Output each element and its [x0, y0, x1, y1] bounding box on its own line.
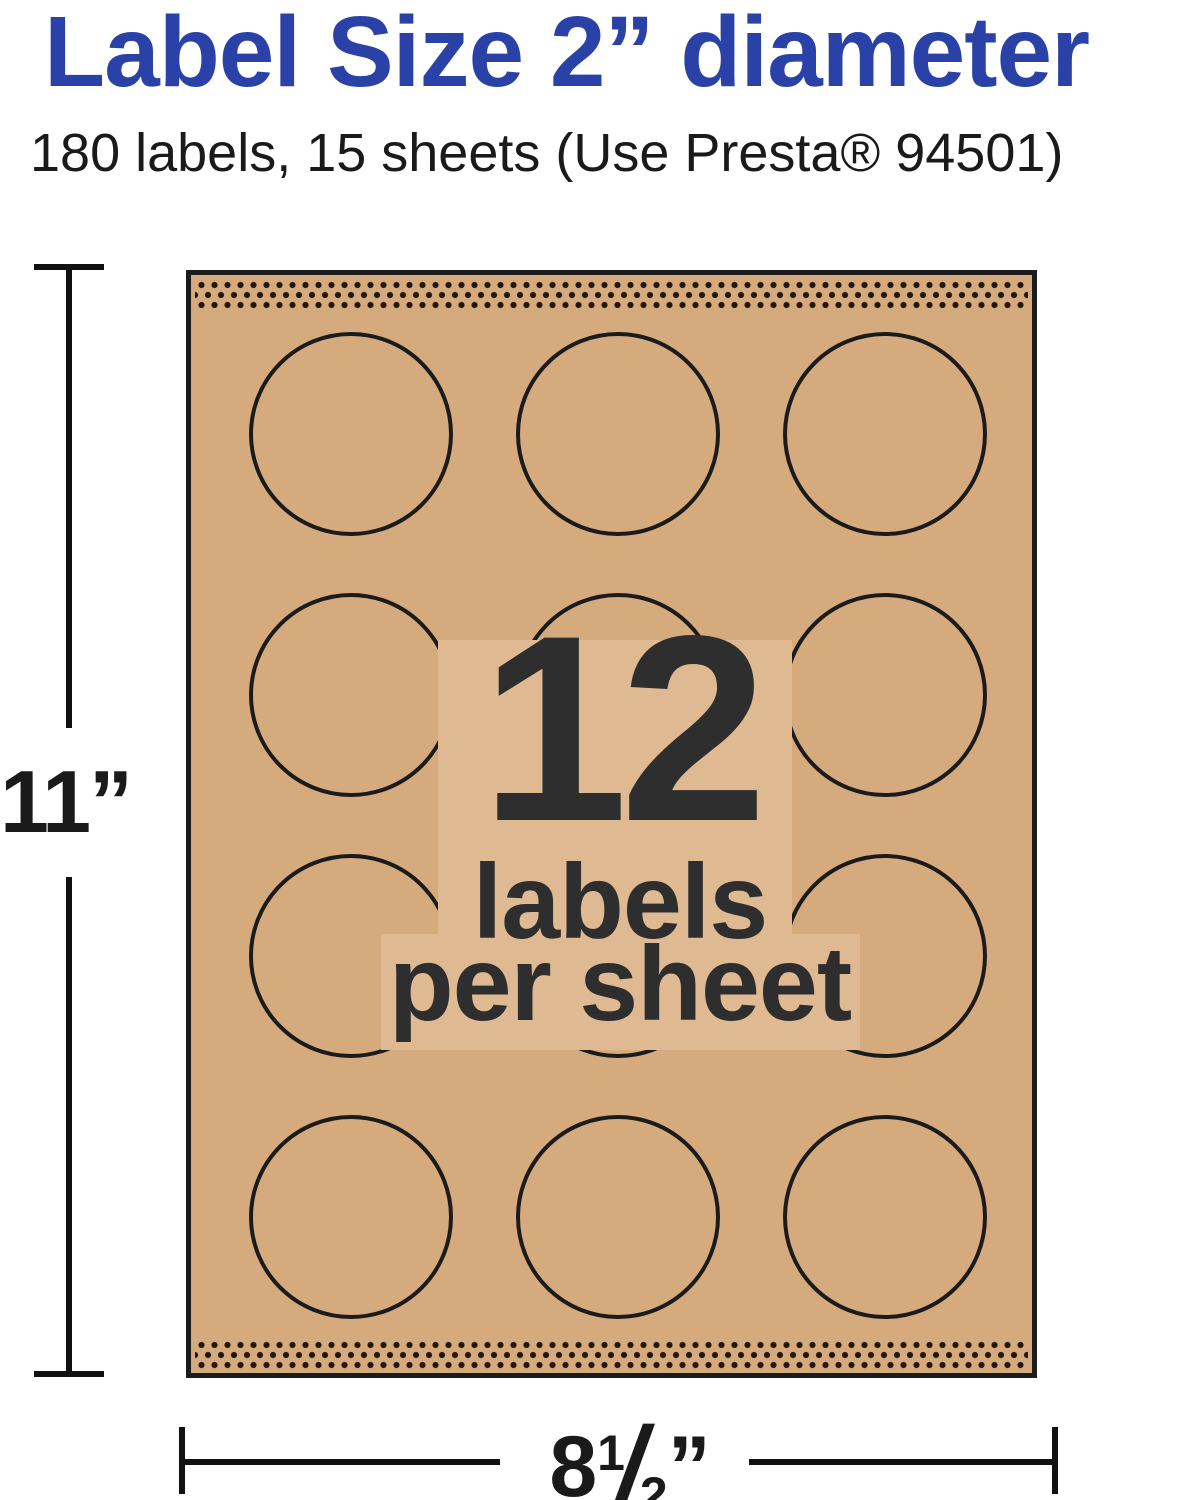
label-circle	[251, 334, 451, 534]
label-circle	[518, 334, 718, 534]
page-title: Label Size 2” diameter	[44, 2, 1089, 102]
labels-caption-line2: per sheet	[389, 938, 851, 1030]
height-dimension-label: 11”	[0, 762, 124, 842]
width-fraction-denominator: 2	[640, 1467, 668, 1500]
label-circle	[785, 1117, 985, 1317]
height-dimension-segment-lower	[66, 877, 72, 1373]
label-circle	[251, 1117, 451, 1317]
label-circle	[251, 595, 451, 795]
width-unit-mark: ”	[668, 1419, 711, 1500]
product-diagram: Label Size 2” diameter 180 labels, 15 sh…	[0, 0, 1186, 1500]
label-circle	[785, 334, 985, 534]
label-circle	[785, 595, 985, 795]
width-dimension-segment-left	[185, 1459, 500, 1465]
label-circle	[518, 1117, 718, 1317]
label-sheet: 12 labels per sheet	[186, 270, 1037, 1378]
height-dimension-cap-bottom	[34, 1371, 104, 1377]
height-dimension-segment-upper	[66, 264, 72, 728]
width-dimension-tick-right	[1052, 1427, 1058, 1494]
width-dimension-label: 81/2”	[505, 1415, 755, 1500]
page-subtitle: 180 labels, 15 sheets (Use Presta® 94501…	[30, 120, 1063, 186]
width-dimension-segment-right	[749, 1459, 1058, 1465]
width-whole-number: 8	[549, 1419, 597, 1500]
labels-per-sheet-count: 12	[481, 627, 760, 831]
